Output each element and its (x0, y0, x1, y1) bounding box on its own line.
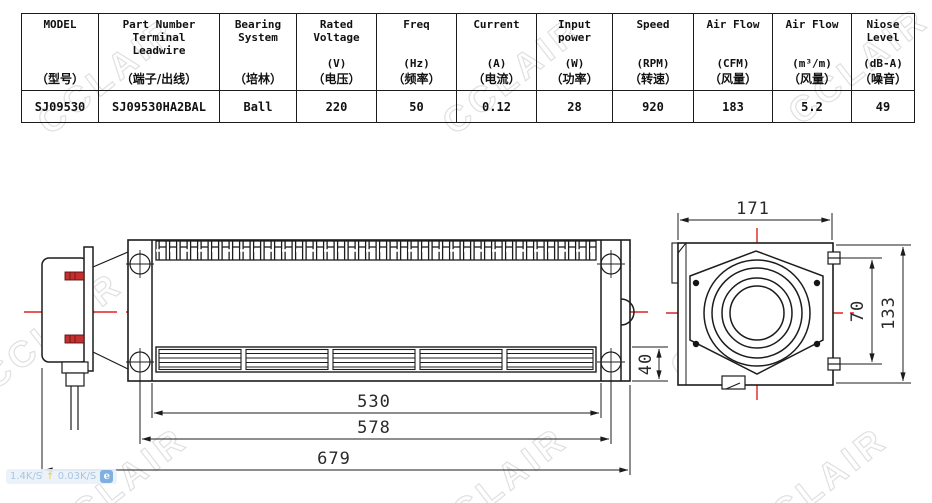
col-header-input-power: Input power (W) （功率） (537, 14, 613, 91)
dim-171: 171 (736, 199, 770, 219)
download-speed: 0.03K/S (58, 471, 97, 482)
value-voltage: 220 (297, 91, 377, 123)
col-header-freq: Freq (Hz) （频率） (377, 14, 457, 91)
column-name-cn: （培林） (234, 71, 282, 88)
column-unit: (RPM) (636, 57, 669, 71)
column-name: Current (473, 18, 519, 31)
column-unit: (V) (327, 57, 347, 71)
column-name: MODEL (43, 18, 76, 31)
dim-133: 133 (879, 296, 899, 330)
dim-679: 679 (317, 449, 351, 469)
col-header-part-number: Part Number Terminal Leadwire （端子/出线） (99, 14, 220, 91)
column-name: Input power (558, 18, 591, 44)
datasheet-page: CCLAIR CCLAIR CCLAIR CCLAIR CCLAIR CCLAI… (0, 0, 932, 503)
value-airflow-cfm: 183 (694, 91, 773, 123)
watermark-text: CCLAIR (739, 418, 895, 503)
lead-wire (62, 362, 88, 430)
dim-70: 70 (848, 300, 868, 322)
column-name: Part Number Terminal Leadwire (123, 18, 196, 57)
up-arrow-icon: ↑ (46, 472, 54, 482)
col-header-airflow-m3: Air Flow (m³/m) （风量） (773, 14, 852, 91)
upload-speed: 1.4K/S (10, 471, 42, 482)
col-header-voltage: Rated Voltage (V) （电压） (297, 14, 377, 91)
column-unit: (A) (487, 57, 507, 71)
col-header-model: MODEL （型号） (22, 14, 99, 91)
column-name: Freq (403, 18, 430, 31)
inlet-grille (156, 241, 596, 260)
dim-578: 578 (357, 418, 391, 438)
column-unit: (W) (565, 57, 585, 71)
network-speed-widget[interactable]: 1.4K/S ↑ 0.03K/S e (6, 469, 117, 484)
column-name-cn: （电压） (312, 71, 360, 88)
header-row: MODEL （型号） Part Number Terminal Leadwire… (22, 14, 915, 91)
col-header-noise: Niose Level (dB-A) （噪音） (852, 14, 915, 91)
column-name: Rated Voltage (313, 18, 359, 44)
value-freq: 50 (377, 91, 457, 123)
column-unit: (dB-A) (863, 57, 903, 71)
value-speed: 920 (613, 91, 694, 123)
spec-table: MODEL （型号） Part Number Terminal Leadwire… (21, 13, 915, 123)
column-name-cn: （风量） (788, 71, 836, 88)
watermark-text: CCLAIR (419, 418, 575, 503)
column-name-cn: （转速） (629, 71, 677, 88)
column-name-cn: （型号） (36, 71, 84, 88)
col-header-airflow-cfm: Air Flow (CFM) （风量） (694, 14, 773, 91)
col-header-bearing: Bearing System （培林） (220, 14, 297, 91)
column-name-cn: （风量） (709, 71, 757, 88)
dim-530: 530 (357, 392, 391, 412)
data-row: SJ09530 SJ09530HA2BAL Ball 220 50 0.12 2… (22, 91, 915, 123)
column-name-cn: （端子/出线） (121, 71, 197, 88)
value-model: SJ09530 (22, 91, 99, 123)
column-name: Bearing System (235, 18, 281, 44)
outlet-louver (156, 347, 596, 372)
value-input-power: 28 (537, 91, 613, 123)
column-name-cn: （频率） (392, 71, 440, 88)
col-header-current: Current (A) （电流） (457, 14, 537, 91)
value-airflow-m3: 5.2 (773, 91, 852, 123)
bottom-tab (722, 376, 745, 389)
side-view (666, 228, 854, 400)
column-name-cn: （功率） (550, 71, 598, 88)
terminal-plate (84, 247, 93, 371)
column-name: Speed (636, 18, 669, 31)
watermark-text: CCLAIR (39, 418, 195, 503)
column-unit: (Hz) (403, 57, 430, 71)
column-name-cn: （电流） (472, 71, 520, 88)
value-bearing: Ball (220, 91, 297, 123)
dim-40: 40 (636, 353, 656, 375)
column-unit: (CFM) (716, 57, 749, 71)
value-noise: 49 (852, 91, 915, 123)
value-current: 0.12 (457, 91, 537, 123)
front-view (24, 240, 652, 430)
col-header-speed: Speed (RPM) （转速） (613, 14, 694, 91)
column-unit: (m³/m) (792, 57, 832, 71)
value-part-number: SJ09530HA2BAL (99, 91, 220, 123)
column-name-cn: （噪音） (859, 71, 907, 88)
browser-icon[interactable]: e (100, 470, 113, 483)
column-name: Air Flow (786, 18, 839, 31)
column-name: Air Flow (707, 18, 760, 31)
column-name: Niose Level (866, 18, 899, 44)
